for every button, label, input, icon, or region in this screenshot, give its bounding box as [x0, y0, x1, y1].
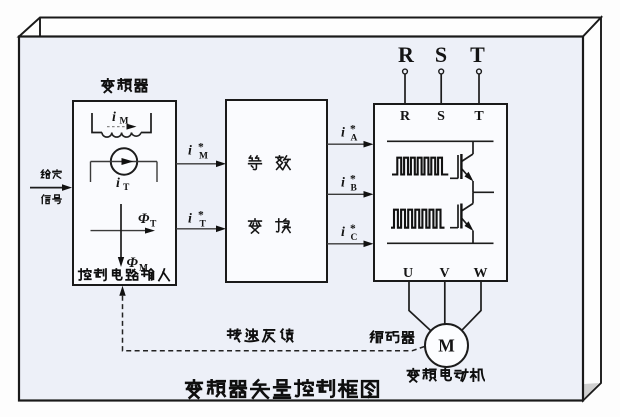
svg-text:M: M — [438, 336, 455, 356]
svg-text:T: T — [470, 42, 485, 67]
svg-text:C: C — [351, 233, 358, 243]
svg-text:Φ: Φ — [127, 255, 139, 271]
svg-text:A: A — [351, 134, 358, 144]
svg-text:i: i — [341, 176, 345, 191]
svg-text:M: M — [199, 152, 208, 162]
svg-text:T: T — [474, 109, 484, 124]
svg-text:T: T — [123, 183, 130, 193]
svg-text:T: T — [150, 220, 157, 230]
svg-text:i: i — [188, 144, 192, 159]
svg-text:i: i — [112, 110, 116, 125]
svg-text:R: R — [398, 42, 415, 67]
svg-text:i: i — [341, 225, 345, 240]
svg-text:i: i — [116, 176, 120, 191]
svg-text:V: V — [439, 266, 449, 281]
svg-text:B: B — [351, 184, 358, 194]
svg-text:i: i — [341, 126, 345, 141]
svg-text:S: S — [437, 109, 445, 124]
svg-text:T: T — [200, 220, 207, 230]
svg-text:U: U — [403, 266, 413, 281]
svg-text:i: i — [188, 212, 192, 227]
svg-text:S: S — [435, 42, 447, 67]
svg-text:W: W — [474, 266, 488, 281]
svg-text:R: R — [400, 109, 411, 124]
svg-text:Φ: Φ — [138, 211, 150, 227]
